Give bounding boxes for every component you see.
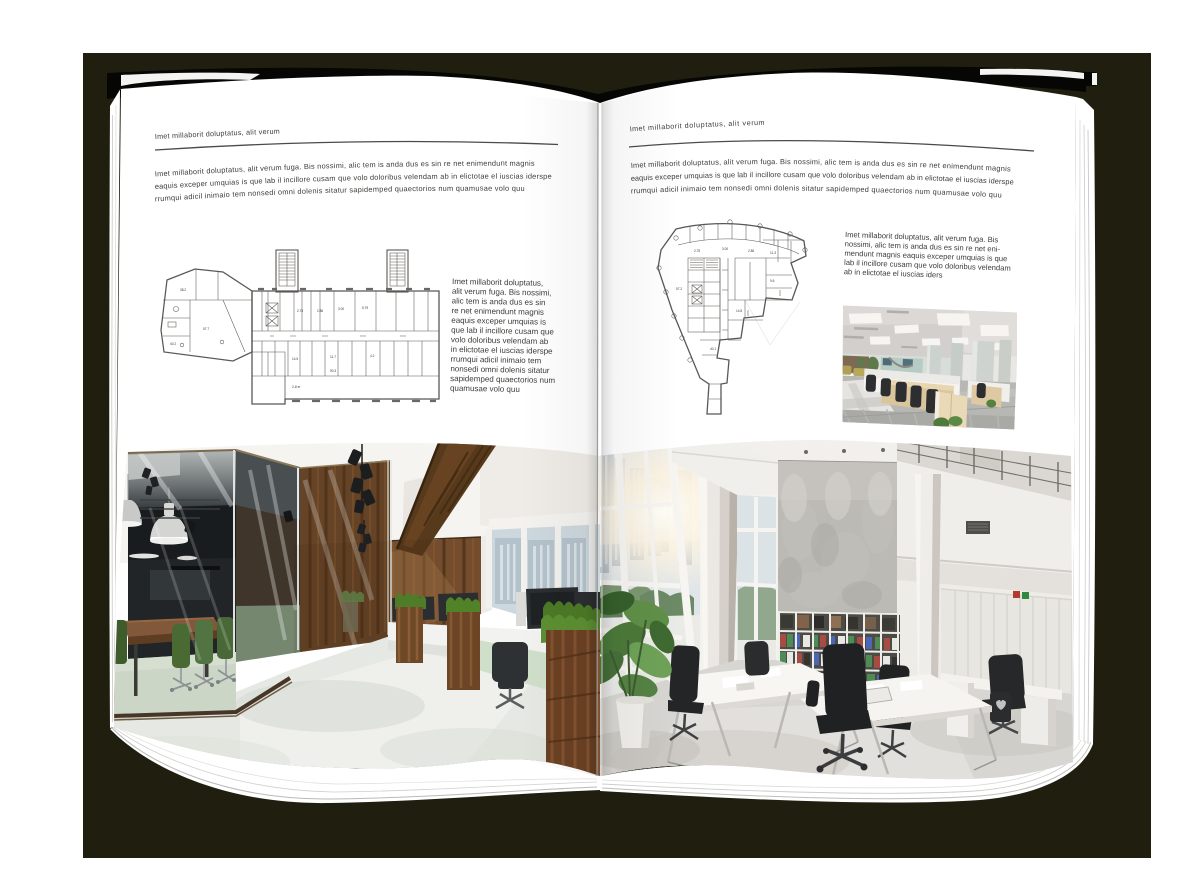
svg-text:40.1: 40.1 (710, 347, 716, 351)
svg-text:14.8: 14.8 (736, 309, 742, 313)
svg-text:quamusae volo quu: quamusae volo quu (450, 384, 520, 394)
svg-text:38.2: 38.2 (180, 288, 186, 292)
svg-text:2.86: 2.86 (748, 249, 754, 253)
svg-text:9.6: 9.6 (770, 279, 775, 283)
svg-text:90.3: 90.3 (330, 369, 336, 373)
svg-text:3.00: 3.00 (722, 247, 728, 251)
svg-text:2-й эт: 2-й эт (292, 385, 301, 389)
svg-text:3.00: 3.00 (338, 307, 344, 311)
svg-text:2.86: 2.86 (317, 309, 323, 313)
svg-text:11.3: 11.3 (770, 251, 776, 255)
svg-text:2.75: 2.75 (297, 309, 303, 313)
svg-text:40.2: 40.2 (170, 342, 176, 346)
svg-text:4.2: 4.2 (370, 354, 375, 358)
svg-text:14.5: 14.5 (292, 357, 298, 361)
svg-text:11.7: 11.7 (330, 355, 336, 359)
svg-text:2.75: 2.75 (694, 249, 700, 253)
svg-text:5.79: 5.79 (362, 306, 368, 310)
svg-text:57.7: 57.7 (203, 327, 209, 331)
